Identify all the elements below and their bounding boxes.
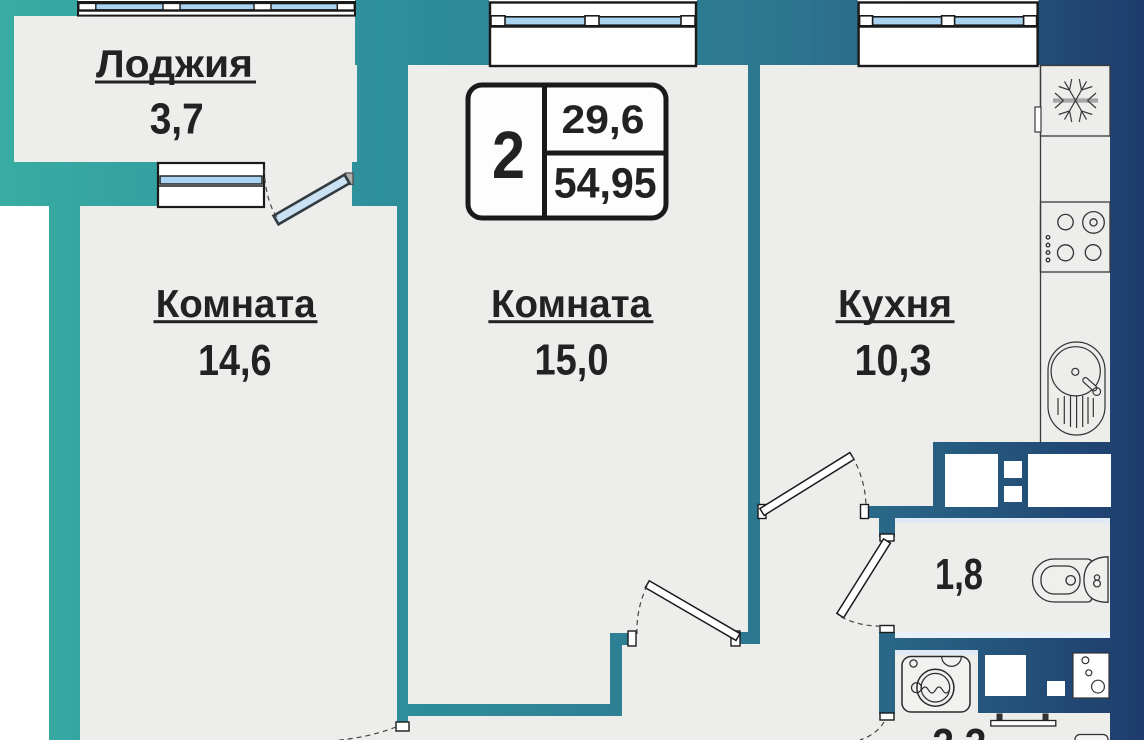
- svg-text:29,6: 29,6: [562, 98, 645, 142]
- svg-text:3,7: 3,7: [150, 95, 204, 144]
- svg-text:3,3: 3,3: [933, 720, 987, 740]
- svg-text:14,6: 14,6: [198, 336, 272, 385]
- svg-text:1,8: 1,8: [935, 550, 983, 599]
- svg-text:Кухня: Кухня: [838, 283, 952, 326]
- svg-text:Комната: Комната: [156, 283, 316, 326]
- svg-text:15,0: 15,0: [535, 336, 609, 385]
- svg-text:Комната: Комната: [491, 283, 651, 326]
- svg-text:Лоджия: Лоджия: [96, 43, 253, 86]
- svg-text:2: 2: [492, 119, 525, 193]
- svg-text:10,3: 10,3: [855, 336, 932, 385]
- svg-text:54,95: 54,95: [554, 160, 657, 208]
